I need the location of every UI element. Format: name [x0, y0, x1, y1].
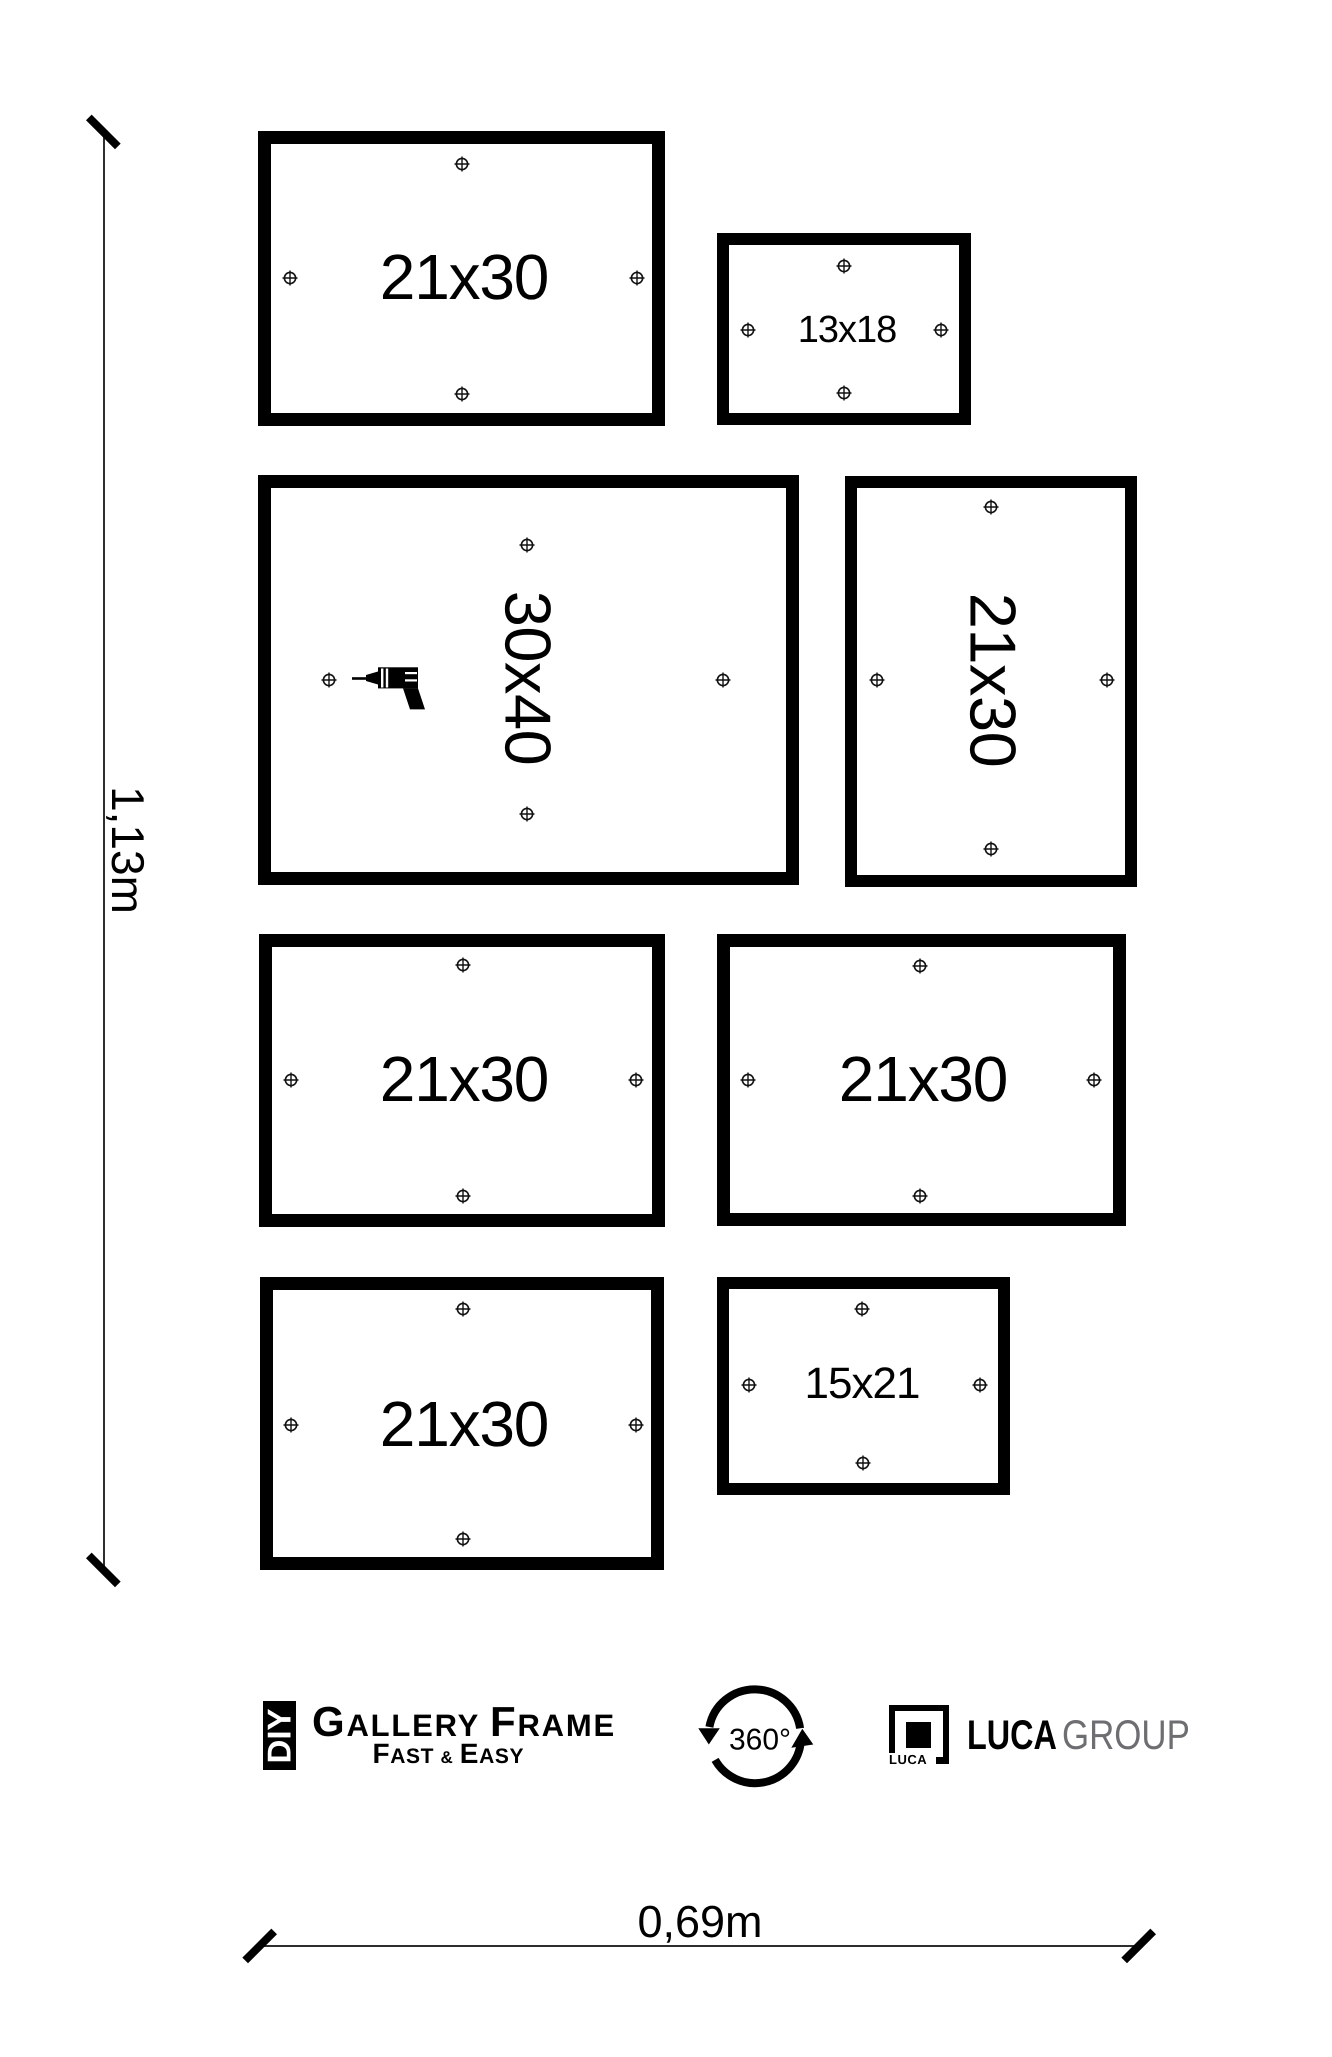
- svg-text:LUCA: LUCA: [889, 1752, 927, 1765]
- svg-text:360°: 360°: [729, 1723, 791, 1756]
